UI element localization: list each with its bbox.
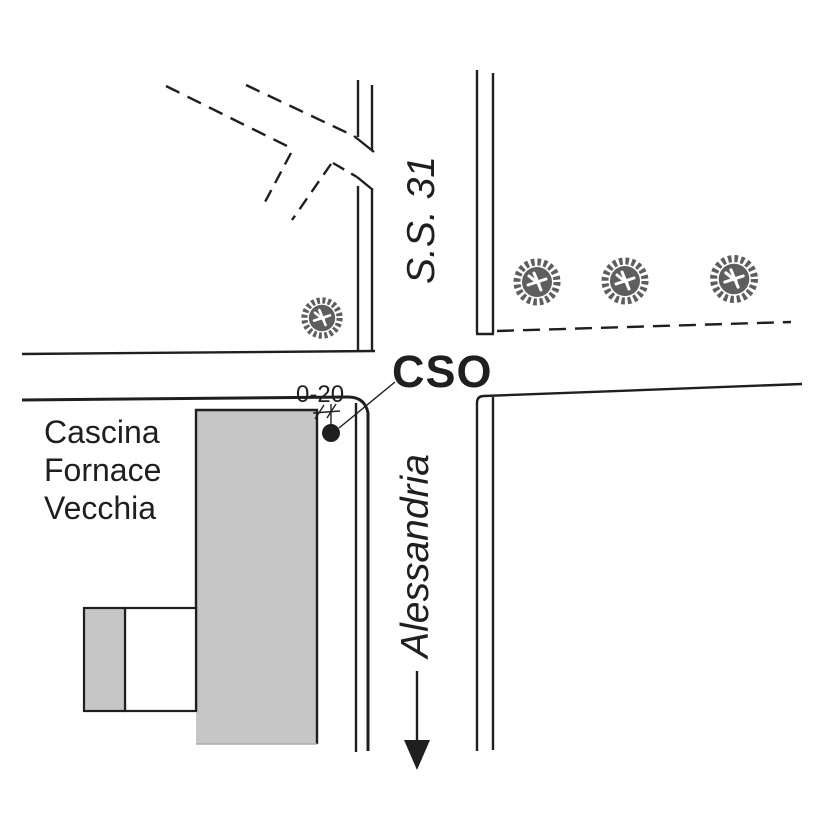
site-sketch-map: S.S. 31 CSO 0-20 Alessandria Cascina For… bbox=[0, 0, 826, 826]
arrow-down-icon bbox=[404, 671, 430, 770]
driveway-branch-edge-c bbox=[265, 153, 291, 202]
driveway-dashed-northwest bbox=[166, 85, 374, 220]
building-label-line1: Cascina bbox=[44, 413, 204, 451]
tree-icon bbox=[517, 262, 557, 302]
driveway-edge-a bbox=[166, 86, 291, 148]
road-edge-east bbox=[484, 384, 802, 396]
building-label-line2: Fornace bbox=[44, 451, 204, 489]
driveway-branch-edge-d bbox=[292, 164, 331, 220]
building-label-line3: Vecchia bbox=[44, 489, 204, 527]
tree-icon bbox=[605, 261, 645, 301]
building-main-block bbox=[196, 410, 317, 744]
driveway-edge-d2 bbox=[333, 163, 357, 177]
tree-icon bbox=[714, 259, 755, 300]
driveway-edge-d2-solid bbox=[357, 177, 373, 190]
tree-icon bbox=[304, 300, 339, 335]
route-label-ss31: S.S. 31 bbox=[400, 156, 444, 284]
road-south-east bbox=[477, 322, 802, 751]
sample-depth-label: 0-20 bbox=[296, 381, 344, 409]
building-label: Cascina Fornace Vecchia bbox=[44, 413, 204, 527]
driveway-edge-b bbox=[246, 85, 354, 136]
arrow-head bbox=[404, 740, 430, 770]
building-annex-gray bbox=[84, 608, 125, 711]
sample-point-marker bbox=[322, 424, 340, 442]
road-boundary-east-dashed bbox=[497, 322, 791, 331]
intersection-label-cso: CSO bbox=[392, 346, 493, 398]
direction-label-alessandria: Alessandria bbox=[394, 454, 438, 658]
road-edge-north bbox=[22, 351, 375, 354]
building-annex-white bbox=[125, 608, 196, 711]
road-edge-southeast-outer bbox=[477, 396, 484, 751]
